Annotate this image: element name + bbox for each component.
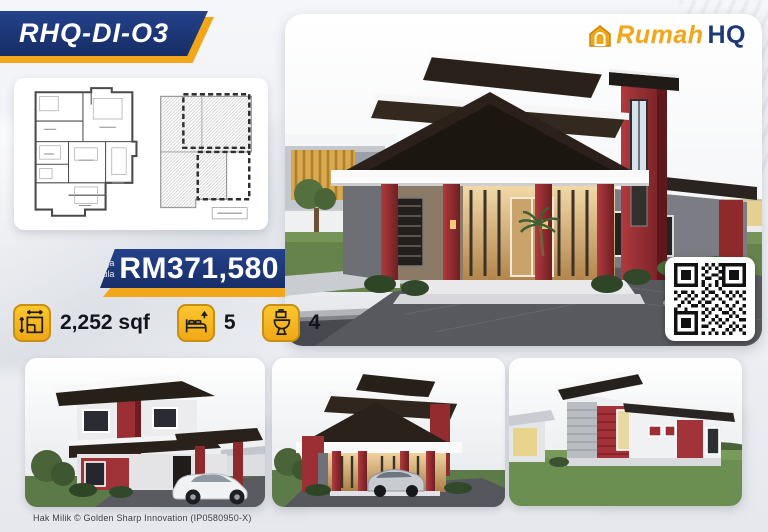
stat-bedrooms-tile — [177, 304, 215, 342]
stat-bathrooms-tile — [262, 304, 300, 342]
main-house-photo: Rumah HQ — [285, 14, 762, 346]
toilet-icon — [267, 309, 295, 337]
price-prefix: Harga bermula — [82, 258, 115, 279]
brand-logo: Rumah HQ — [588, 21, 746, 50]
gallery-photo-1 — [25, 358, 265, 507]
roof-plan-drawing — [152, 84, 260, 224]
house-logo-icon — [588, 24, 612, 48]
bathroom-count: 4 — [309, 311, 321, 335]
qr-code — [665, 257, 755, 341]
floor-area-icon — [18, 309, 46, 337]
price-prefix-line2: bermula — [82, 269, 115, 279]
model-code-label: RHQ-DI-O3 — [19, 18, 169, 49]
two-storey-house-illustration — [25, 358, 265, 507]
bed-icon — [182, 309, 210, 337]
gallery-photo-2 — [272, 358, 505, 507]
model-code-banner: RHQ-DI-O3 — [0, 11, 208, 56]
price-prefix-line1: Harga — [82, 258, 115, 268]
gallery-photo-3 — [509, 358, 742, 506]
qr-pattern — [671, 263, 749, 335]
stat-area-tile — [13, 304, 51, 342]
floorplan-card — [14, 78, 268, 230]
bungalow-front-illustration — [272, 358, 505, 507]
brand-word-rumah: Rumah — [616, 21, 703, 50]
price-banner: Harga bermula RM371,580 — [100, 249, 285, 288]
floor-plan-drawing — [22, 84, 148, 224]
price-amount: RM371,580 — [119, 252, 279, 286]
house-rear-view-illustration — [509, 358, 742, 506]
stats-row: 2,252 sqf 5 4 — [13, 304, 320, 342]
area-value: 2,252 sqf — [60, 311, 150, 335]
flyer-page: { "title_banner": { "label": "RHQ-DI-O3"… — [0, 0, 768, 532]
brand-word-hq: HQ — [708, 21, 747, 50]
copyright-text: Hak Milik © Golden Sharp Innovation (IP0… — [33, 513, 252, 523]
bedroom-count: 5 — [224, 311, 236, 335]
price-banner-accent — [103, 288, 285, 297]
